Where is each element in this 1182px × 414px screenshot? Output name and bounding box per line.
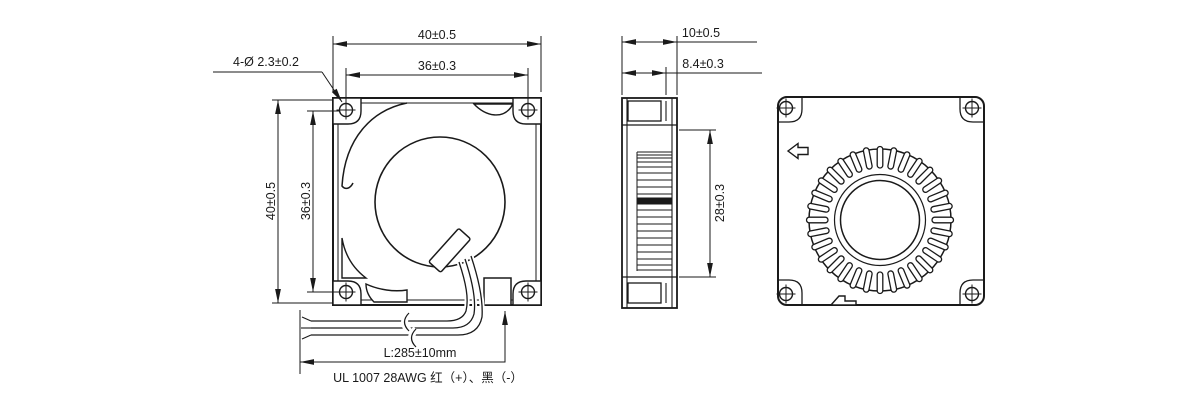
impeller-hub [841,181,920,260]
wire-ends [301,317,311,339]
impeller-blade [807,227,829,237]
impeller-blade [897,151,910,173]
dim-lead-wire-length: L:285±10mm [384,346,457,360]
dim-front-height: 40±0.5 [264,182,278,220]
impeller-blade [930,227,952,237]
rear-view [777,97,985,305]
dim-depth: 10±0.5 [682,26,720,40]
impeller-blade [930,203,952,213]
blower-fan-drawing: 40±0.5 36±0.3 4-Ø 2.3±0.2 40±0.5 36±0.3 … [0,0,1182,414]
wire-exit-box [484,278,511,305]
impeller-blade [887,270,897,292]
corner-vane [342,238,366,278]
corner-vane [366,284,407,302]
mounting-holes-front [337,101,538,302]
dim-front-width: 40±0.5 [418,28,456,42]
impeller-blade [849,151,862,173]
technical-drawing-canvas: 40±0.5 36±0.3 4-Ø 2.3±0.2 40±0.5 36±0.3 … [0,0,1182,414]
side-view [622,98,677,308]
dim-inner-depth: 8.4±0.3 [682,57,724,71]
dim-front-hole-span-h: 36±0.3 [418,59,456,73]
impeller-blade [863,147,873,169]
screw-hole [963,285,982,304]
impeller [807,147,954,294]
dim-front-hole-span-v: 36±0.3 [299,182,313,220]
impeller-blade [877,147,883,169]
impeller-blade [932,217,954,223]
impeller-blade [927,189,949,202]
impeller-blade [849,267,862,289]
impeller-blade [811,237,833,250]
impeller-edge-stripes [637,152,672,271]
wire-exit-notch [831,296,856,305]
stripe-band [637,198,672,204]
dim-mounting-holes: 4-Ø 2.3±0.2 [233,55,299,69]
screw-hole [963,99,982,118]
dimension-lines [213,36,762,374]
impeller-blade [877,272,883,294]
impeller-blade [863,270,873,292]
impeller-blade [807,203,829,213]
impeller-blade [927,237,949,250]
impeller-blade [807,217,829,223]
impeller-blade [887,147,897,169]
rotation-direction-arrow-icon [788,144,808,159]
dim-vent-height: 28±0.3 [713,184,727,222]
impeller-blade [811,189,833,202]
impeller-hub-circle [375,137,505,267]
front-view [301,98,541,347]
wire-spec-note: UL 1007 28AWG 红（+）、黑（-） [333,370,523,385]
impeller-blade [897,267,910,289]
corner-vane [474,104,513,115]
